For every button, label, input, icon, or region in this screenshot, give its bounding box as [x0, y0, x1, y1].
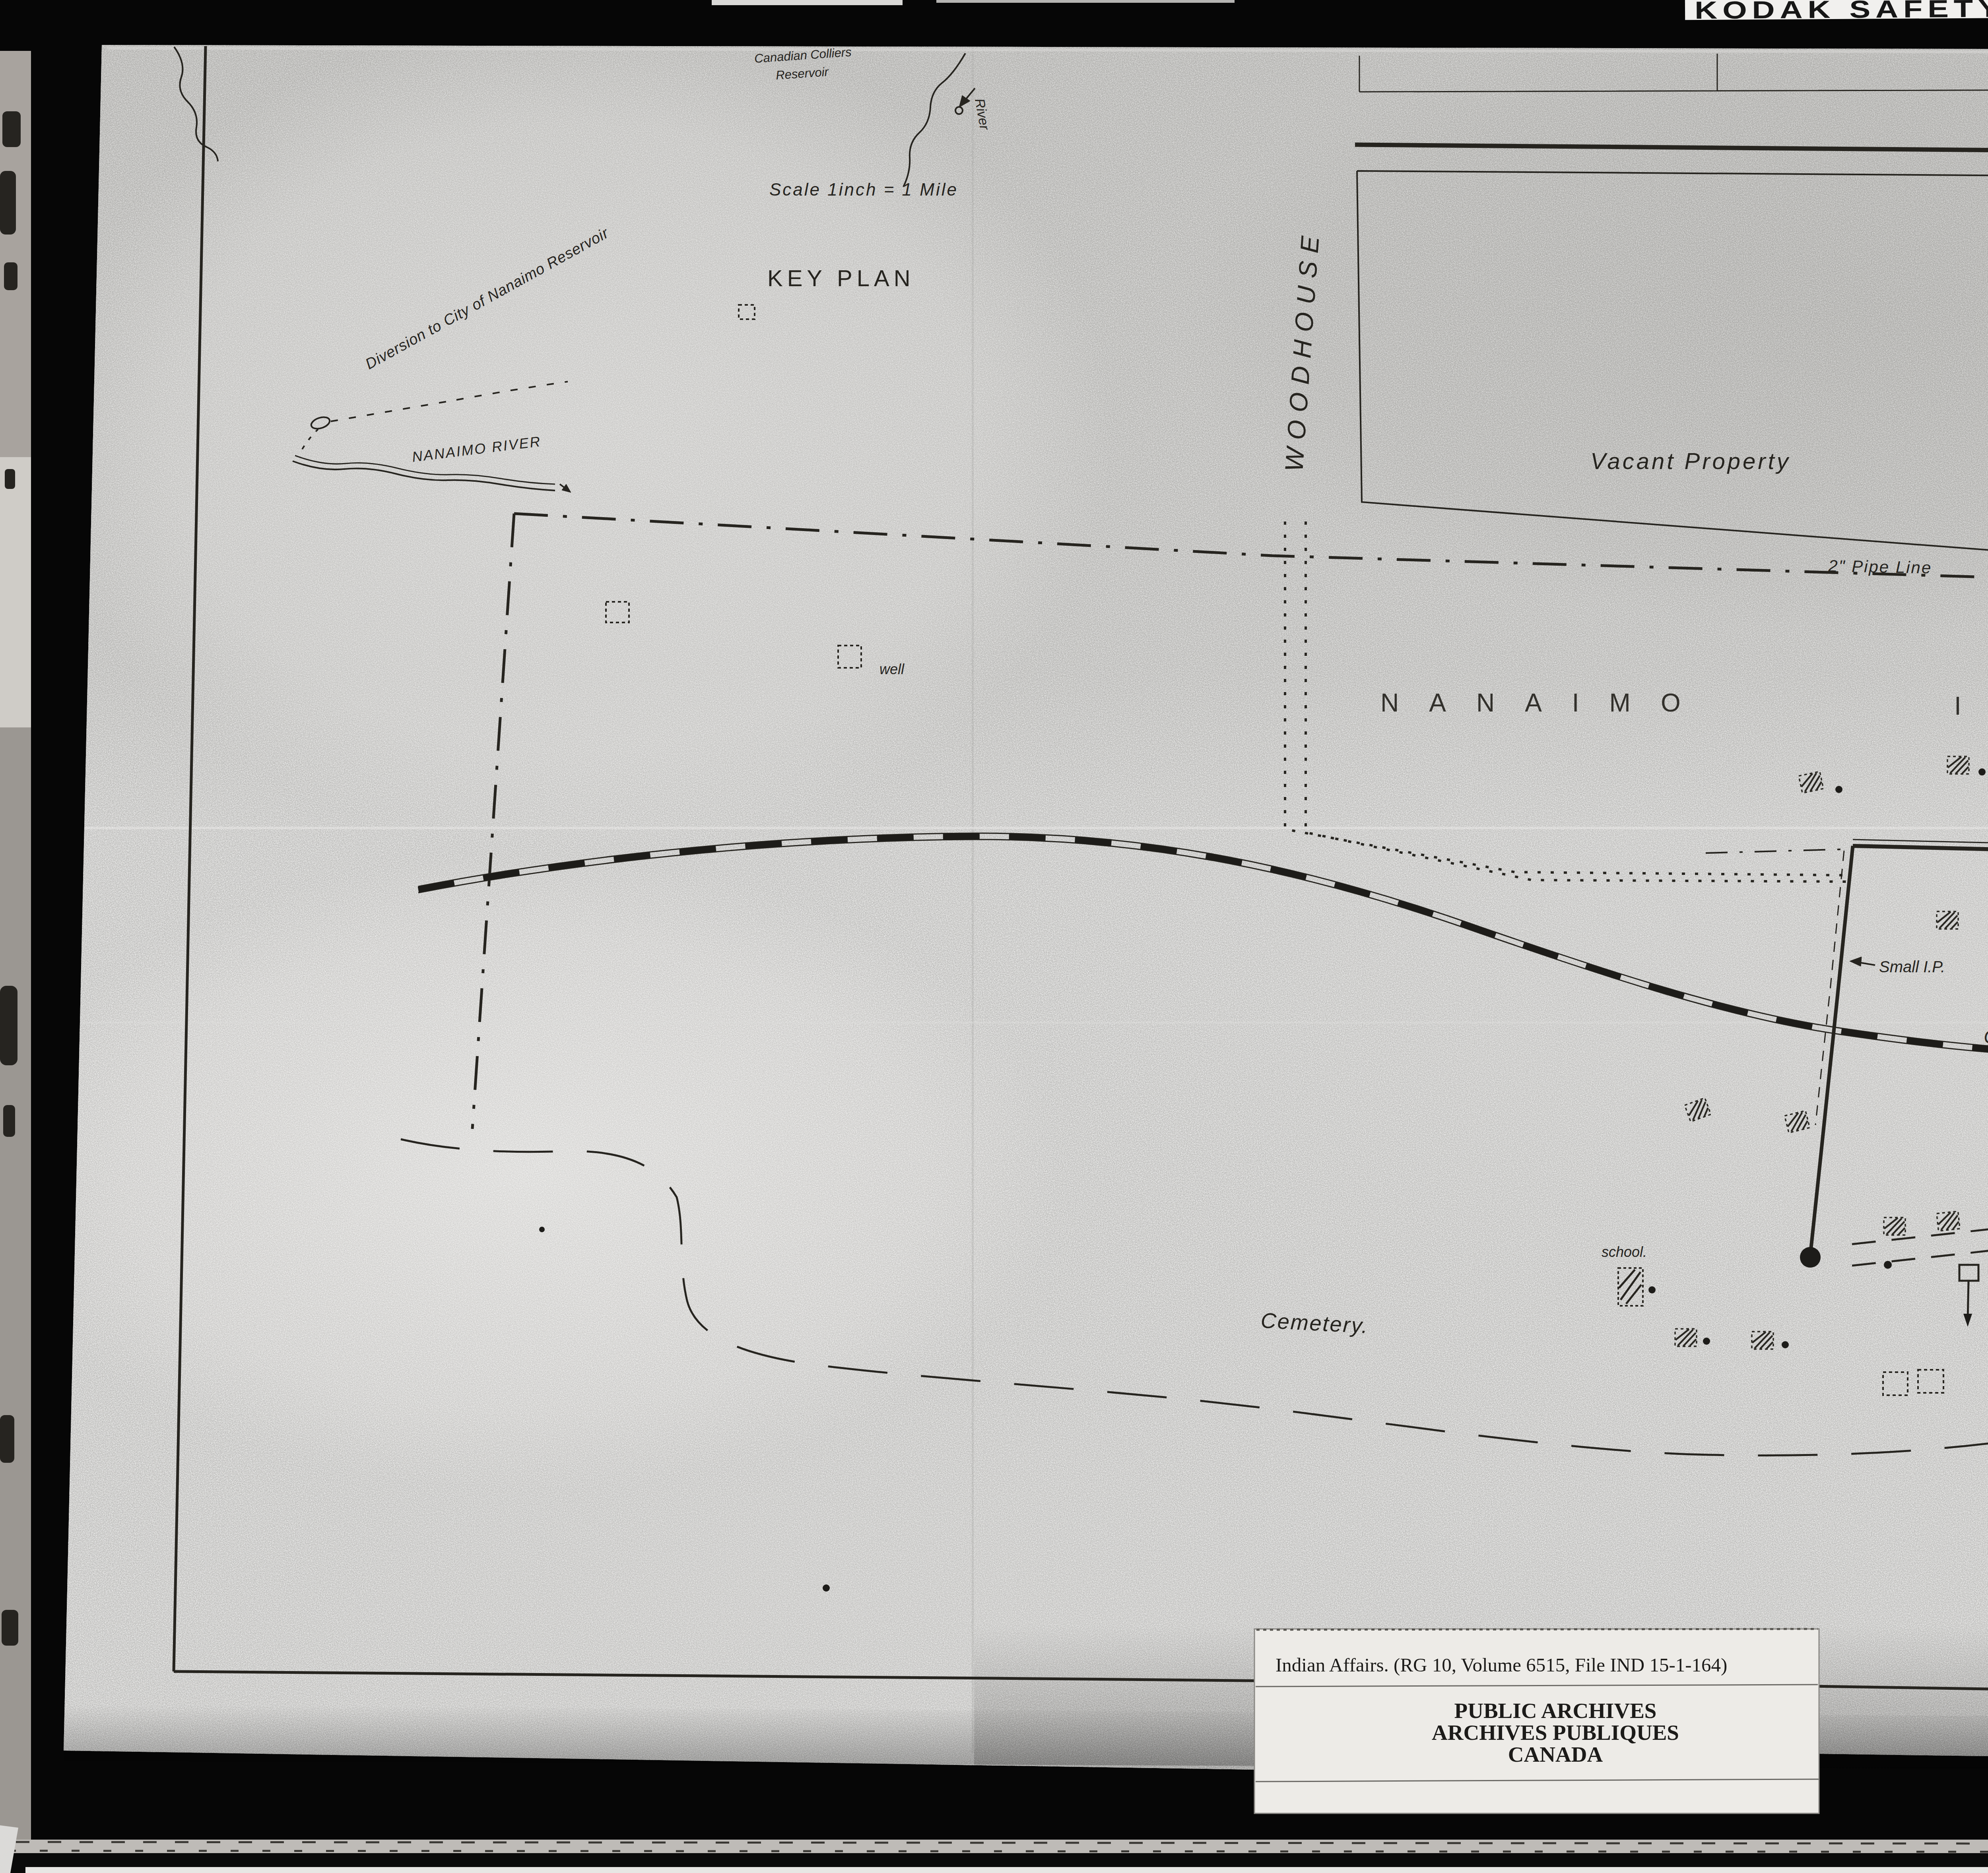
svg-text:ARCHIVES PUBLIQUES: ARCHIVES PUBLIQUES — [1432, 1720, 1679, 1745]
svg-text:INDIAN: INDIAN — [1954, 692, 1988, 720]
svg-text:2" Pipe Line: 2" Pipe Line — [1828, 556, 1932, 577]
svg-text:Scale 1inch = 1 Mile: Scale 1inch = 1 Mile — [769, 180, 958, 199]
svg-text:school.: school. — [1602, 1244, 1647, 1260]
svg-text:Small I.P.: Small I.P. — [1879, 958, 1945, 975]
svg-text:KEY PLAN: KEY PLAN — [767, 265, 915, 291]
svg-text:KODAK SAFETY ▲ FILM ●●: KODAK SAFETY ▲ FILM ●● — [1695, 0, 1988, 24]
svg-text:CANADA: CANADA — [1508, 1742, 1603, 1766]
svg-text:Indian Affairs. (RG 10, Volume: Indian Affairs. (RG 10, Volume 6515, Fil… — [1276, 1654, 1727, 1676]
svg-text:well: well — [879, 661, 905, 677]
svg-text:NANAIMO: NANAIMO — [1380, 688, 1711, 717]
svg-text:PUBLIC ARCHIVES: PUBLIC ARCHIVES — [1454, 1698, 1657, 1723]
svg-text:Vacant Property: Vacant Property — [1590, 448, 1791, 474]
